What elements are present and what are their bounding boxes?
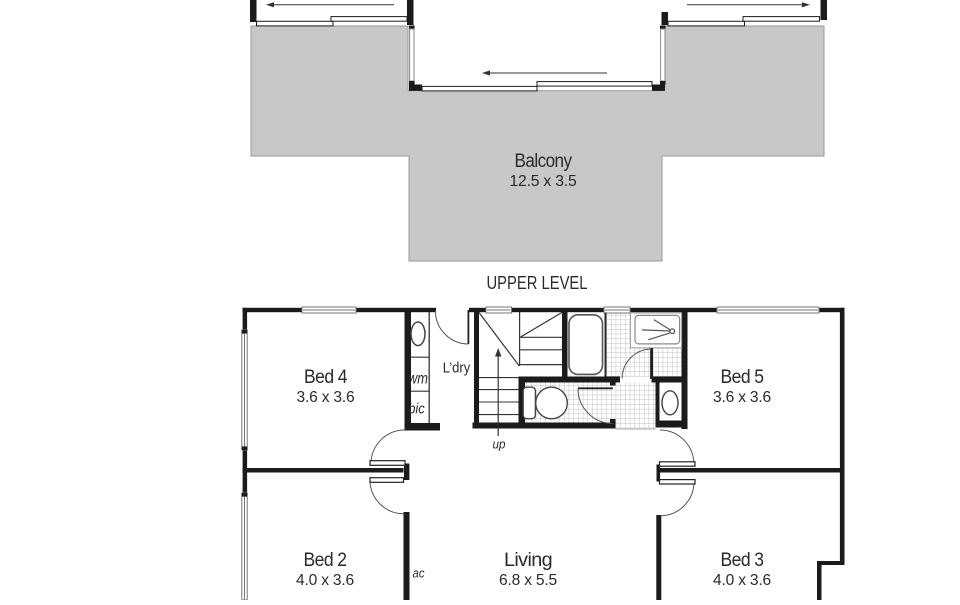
- svg-text:up: up: [493, 437, 506, 452]
- svg-text:Bed 5: Bed 5: [721, 367, 764, 388]
- svg-text:Bed 4: Bed 4: [304, 367, 348, 388]
- svg-text:6.8 x 5.5: 6.8 x 5.5: [499, 572, 557, 589]
- svg-text:ac: ac: [413, 567, 426, 581]
- svg-text:Bed 3: Bed 3: [721, 550, 764, 571]
- svg-text:Living: Living: [504, 550, 552, 571]
- svg-text:UPPER LEVEL: UPPER LEVEL: [487, 273, 588, 293]
- svg-text:4.0 x 3.6: 4.0 x 3.6: [713, 572, 771, 589]
- svg-text:L’dry: L’dry: [443, 361, 471, 377]
- svg-text:4.0 x 3.6: 4.0 x 3.6: [296, 572, 354, 589]
- svg-text:3.6 x 3.6: 3.6 x 3.6: [713, 389, 771, 406]
- svg-text:Bed 2: Bed 2: [304, 550, 347, 571]
- svg-text:Balcony: Balcony: [515, 151, 573, 172]
- svg-text:wm: wm: [408, 371, 428, 388]
- svg-text:bic: bic: [408, 401, 425, 418]
- svg-text:3.6 x 3.6: 3.6 x 3.6: [297, 389, 355, 406]
- svg-text:12.5 x 3.5: 12.5 x 3.5: [510, 173, 577, 190]
